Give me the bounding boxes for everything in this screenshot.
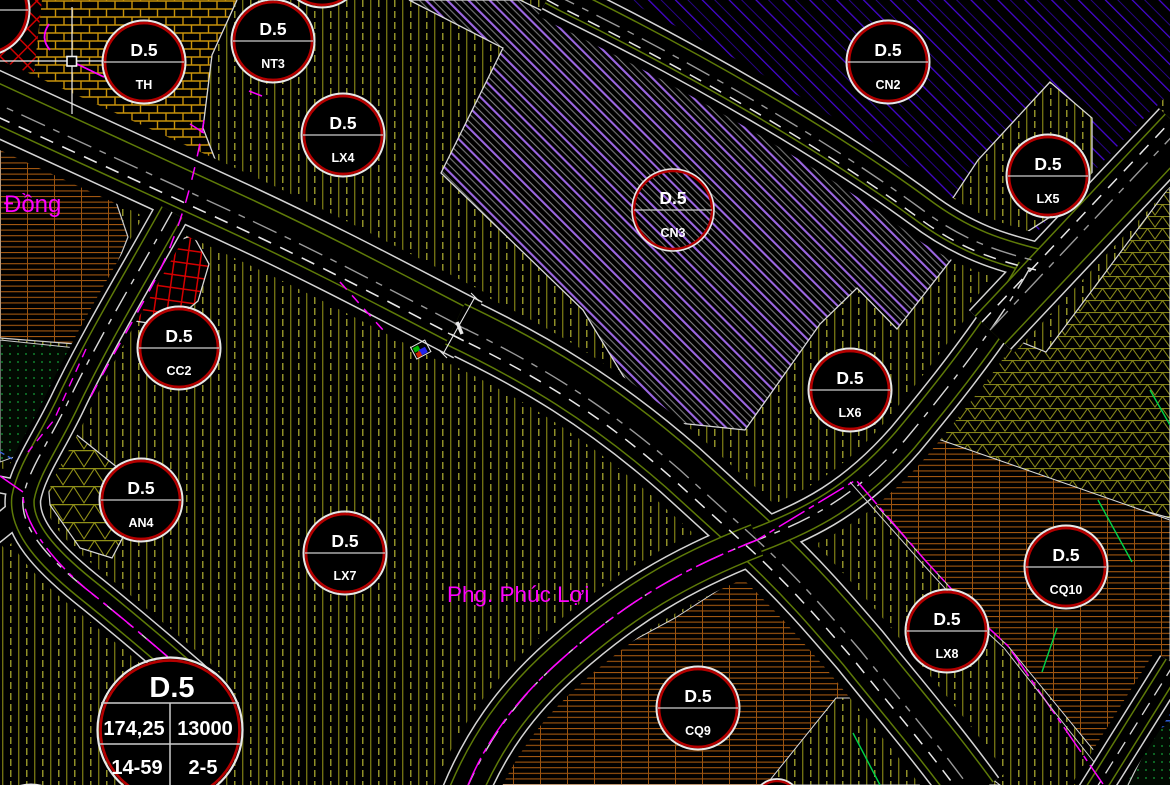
- svg-text:LX5: LX5: [1037, 192, 1060, 206]
- svg-text:D.5: D.5: [127, 478, 155, 498]
- svg-text:D.5: D.5: [836, 368, 864, 388]
- svg-text:D.5: D.5: [259, 19, 287, 39]
- svg-text:13000: 13000: [177, 718, 233, 740]
- svg-text:CQ10: CQ10: [1050, 583, 1083, 597]
- svg-text:D.5: D.5: [165, 326, 193, 346]
- svg-text:LX6: LX6: [839, 406, 862, 420]
- svg-text:D.5: D.5: [149, 672, 194, 704]
- svg-text:D.5: D.5: [684, 686, 712, 706]
- svg-text:D.5: D.5: [874, 40, 902, 60]
- svg-text:AN4: AN4: [128, 516, 153, 530]
- svg-text:D.5: D.5: [933, 609, 961, 629]
- svg-text:D.5: D.5: [329, 113, 357, 133]
- svg-text:NT3: NT3: [261, 57, 285, 71]
- svg-text:CQ9: CQ9: [685, 724, 711, 738]
- svg-text:Phg. Phúc Lợi: Phg. Phúc Lợi: [447, 582, 589, 607]
- svg-text:CN3: CN3: [660, 226, 685, 240]
- svg-text:D.5: D.5: [1052, 545, 1080, 565]
- svg-text:CN2: CN2: [875, 78, 900, 92]
- svg-text:LX8: LX8: [936, 647, 959, 661]
- svg-text:174,25: 174,25: [103, 718, 164, 740]
- svg-text:TH: TH: [136, 78, 153, 92]
- svg-text:14-59: 14-59: [111, 757, 162, 779]
- svg-text:LX7: LX7: [334, 569, 357, 583]
- svg-text:LX4: LX4: [332, 151, 355, 165]
- svg-text:D.5: D.5: [331, 531, 359, 551]
- svg-text:Đồng: Đồng: [4, 191, 61, 218]
- svg-text:D.5: D.5: [130, 40, 158, 60]
- svg-text:D.5: D.5: [659, 188, 687, 208]
- svg-text:CC2: CC2: [166, 364, 191, 378]
- svg-text:D.5: D.5: [1034, 154, 1062, 174]
- svg-text:2-5: 2-5: [189, 757, 218, 779]
